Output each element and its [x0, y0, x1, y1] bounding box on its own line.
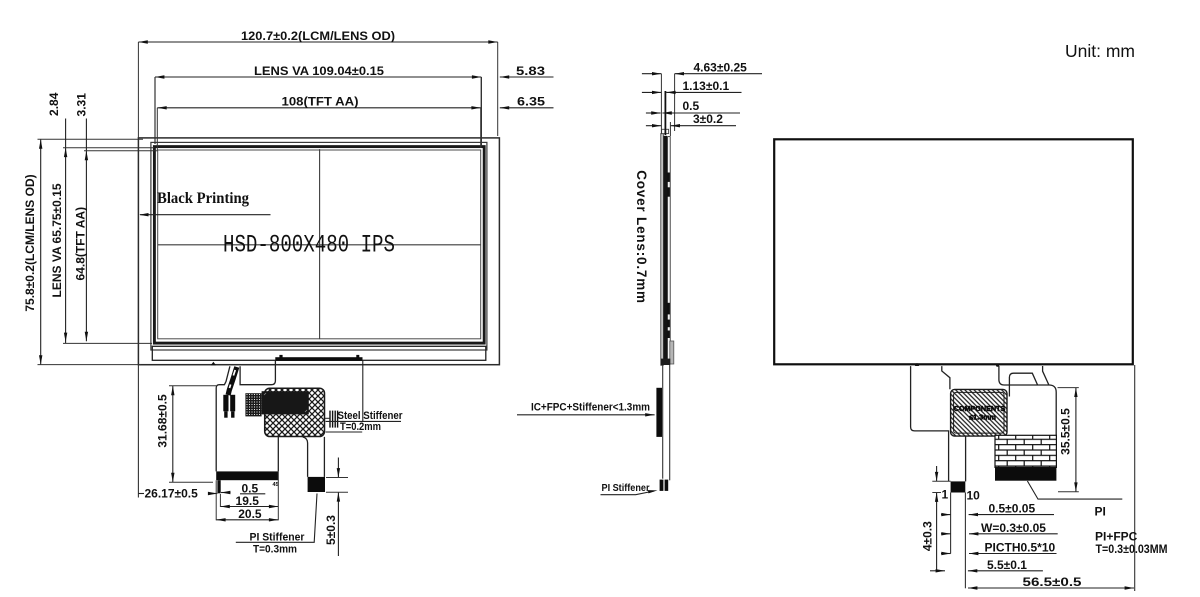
svg-text:64.8(TFT AA): 64.8(TFT AA): [73, 207, 87, 281]
svg-text:≤1.3mm: ≤1.3mm: [969, 413, 996, 422]
svg-text:Steel Stiffener: Steel Stiffener: [338, 410, 404, 422]
svg-text:T=0.3mm: T=0.3mm: [253, 543, 297, 555]
svg-text:31.68±0.5: 31.68±0.5: [156, 394, 170, 448]
svg-text:75.8±0.2(LCM/LENS OD): 75.8±0.2(LCM/LENS OD): [23, 174, 37, 311]
svg-text:PI Stiffener: PI Stiffener: [602, 482, 650, 494]
svg-text:10: 10: [967, 489, 981, 503]
svg-text:3.31: 3.31: [74, 93, 88, 117]
svg-text:3±0.2: 3±0.2: [693, 112, 723, 126]
svg-text:IC+FPC+Stiffener<1.3mm: IC+FPC+Stiffener<1.3mm: [531, 401, 650, 413]
svg-text:COMPONENTS: COMPONENTS: [954, 404, 1006, 413]
svg-text:W=0.3±0.05: W=0.3±0.05: [981, 521, 1046, 535]
svg-text:5.5±0.1: 5.5±0.1: [987, 558, 1027, 572]
svg-text:5±0.3: 5±0.3: [324, 515, 338, 545]
svg-text:5.83: 5.83: [516, 64, 545, 78]
svg-text:Black Printing: Black Printing: [157, 190, 249, 207]
svg-text:Cover Lens:0.7mm: Cover Lens:0.7mm: [634, 170, 649, 304]
svg-text:0.5: 0.5: [683, 99, 700, 113]
svg-text:LENS VA 65.75±0.15: LENS VA 65.75±0.15: [50, 183, 64, 297]
svg-text:1.13±0.1: 1.13±0.1: [683, 79, 730, 93]
svg-text:2.84: 2.84: [47, 92, 61, 116]
svg-text:1: 1: [942, 488, 949, 502]
svg-text:35.5±0.5: 35.5±0.5: [1059, 408, 1073, 455]
svg-text:120.7±0.2(LCM/LENS OD): 120.7±0.2(LCM/LENS OD): [241, 29, 395, 43]
svg-text:T=0.2mm: T=0.2mm: [340, 421, 381, 433]
svg-text:6.35: 6.35: [517, 95, 545, 109]
svg-text:PI Stiffener: PI Stiffener: [250, 531, 306, 543]
svg-text:45: 45: [273, 482, 279, 488]
svg-text:20.5: 20.5: [238, 507, 262, 521]
svg-text:PICTH0.5*10: PICTH0.5*10: [985, 541, 1056, 555]
svg-text:PI: PI: [1095, 505, 1106, 519]
svg-text:56.5±0.5: 56.5±0.5: [1023, 575, 1082, 589]
svg-text:Unit: mm: Unit: mm: [1065, 41, 1135, 61]
svg-text:HSD-800X480 IPS: HSD-800X480 IPS: [223, 231, 395, 260]
svg-text:4±0.3: 4±0.3: [921, 521, 935, 551]
svg-text:LENS VA 109.04±0.15: LENS VA 109.04±0.15: [254, 64, 384, 78]
svg-text:26.17±0.5: 26.17±0.5: [145, 487, 199, 501]
svg-text:T=0.3±0.03MM: T=0.3±0.03MM: [1096, 542, 1168, 556]
svg-text:0.5±0.05: 0.5±0.05: [989, 502, 1036, 516]
svg-text:108(TFT AA): 108(TFT AA): [282, 95, 359, 109]
svg-text:4.63±0.25: 4.63±0.25: [694, 61, 748, 75]
